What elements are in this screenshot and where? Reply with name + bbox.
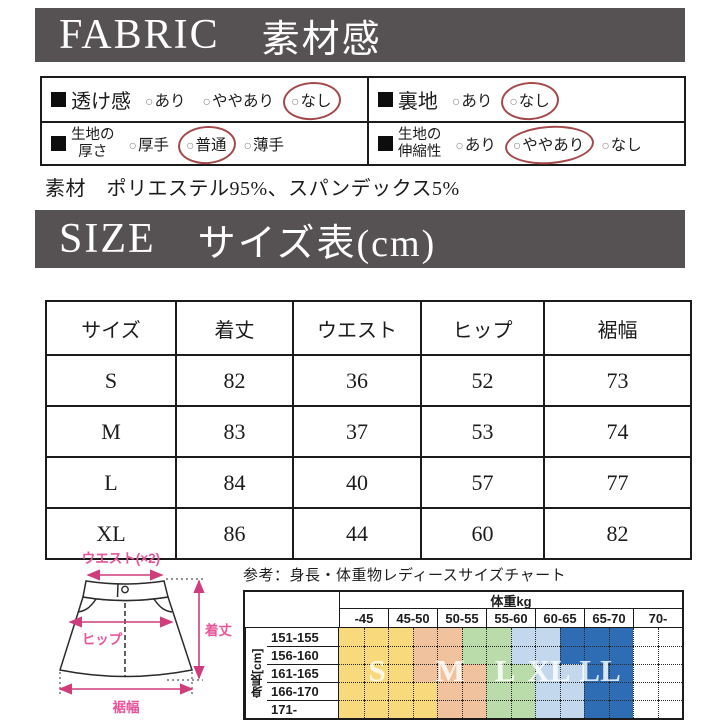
fabric-spec-options: ○あり○なし bbox=[452, 89, 550, 111]
weight-column-header: 50-55 bbox=[437, 609, 486, 628]
fabric-spec-table: 透け感 ○あり○ややあり○なし 裏地 ○あり○なし 生地の厚さ ○厚手○普通○薄… bbox=[40, 76, 686, 166]
heatmap-cell bbox=[584, 700, 609, 718]
size-table-cell: 73 bbox=[544, 355, 691, 406]
heatmap-cell bbox=[437, 664, 462, 682]
fabric-spec-label: 生地の伸縮性 bbox=[398, 127, 442, 159]
radio-circle-icon: ○ bbox=[513, 139, 521, 154]
heatmap-cell bbox=[437, 646, 462, 664]
material-composition-text: 素材 ポリエステル95%、スパンデックス5% bbox=[45, 172, 460, 201]
size-table-cell: 82 bbox=[176, 355, 293, 406]
fabric-option: ○厚手 bbox=[129, 133, 169, 155]
heatmap-cell bbox=[633, 682, 658, 700]
size-title-en: SIZE bbox=[59, 215, 156, 263]
radio-circle-icon: ○ bbox=[186, 139, 194, 154]
heatmap-cell bbox=[584, 664, 609, 682]
skirt-body-outline bbox=[60, 597, 192, 677]
fabric-spec-label: 裏地 bbox=[398, 85, 438, 114]
size-table-row: S82365273 bbox=[46, 355, 691, 406]
skirt-button bbox=[122, 586, 128, 592]
heatmap-cell bbox=[609, 646, 634, 664]
size-table-cell: M bbox=[46, 406, 176, 457]
hem-label: 裾幅 bbox=[113, 699, 140, 715]
heatmap-cell bbox=[364, 628, 389, 646]
black-square-icon bbox=[378, 92, 393, 107]
heatmap-cell bbox=[511, 700, 536, 718]
heatmap-cell bbox=[511, 682, 536, 700]
heatmap-cell bbox=[437, 682, 462, 700]
reference-size-chart: 体重kg-4545-5050-5555-6060-6565-7070-身長[cm… bbox=[243, 590, 684, 720]
fabric-option-selected: ○ややあり bbox=[513, 133, 584, 155]
height-group-header: 身長[cm] bbox=[245, 628, 267, 718]
heatmap-cell bbox=[388, 664, 413, 682]
size-table-cell: 37 bbox=[293, 406, 421, 457]
product-spec-page: FABRIC 素材感 透け感 ○あり○ややあり○なし 裏地 ○あり○なし 生地の… bbox=[0, 0, 720, 720]
fabric-option: ○あり bbox=[145, 89, 185, 111]
size-table-row: L84405777 bbox=[46, 457, 691, 508]
heatmap-cell bbox=[658, 646, 683, 664]
size-table-cell: 82 bbox=[544, 508, 691, 559]
weight-column-header: 65-70 bbox=[584, 609, 633, 628]
heatmap-cell bbox=[609, 628, 634, 646]
heatmap-cell bbox=[658, 664, 683, 682]
heatmap-cell bbox=[633, 664, 658, 682]
heatmap-cell bbox=[584, 628, 609, 646]
heatmap-cell bbox=[364, 664, 389, 682]
radio-circle-icon: ○ bbox=[509, 95, 517, 110]
heatmap-cell bbox=[535, 682, 560, 700]
size-title-ja: サイズ表(cm) bbox=[198, 212, 437, 267]
black-square-icon bbox=[51, 136, 66, 151]
weight-column-header: -45 bbox=[339, 609, 388, 628]
size-table-column-header: 裾幅 bbox=[544, 301, 691, 355]
heatmap-cell bbox=[388, 682, 413, 700]
heatmap-cell bbox=[511, 664, 536, 682]
fabric-option-selected: ○なし bbox=[291, 89, 331, 111]
hip-label: ヒップ bbox=[82, 632, 123, 647]
fabric-spec-cell: 生地の伸縮性 ○あり○ややあり○なし bbox=[367, 121, 684, 164]
size-table-cell: 40 bbox=[293, 457, 421, 508]
heatmap-cell bbox=[462, 646, 487, 664]
size-table-body: S82365273M83375374L84405777XL86446082 bbox=[46, 355, 691, 559]
heatmap-cell bbox=[437, 700, 462, 718]
heatmap-cell bbox=[535, 646, 560, 664]
fabric-spec-cell: 透け感 ○あり○ややあり○なし bbox=[42, 78, 367, 121]
size-table-cell: 83 bbox=[176, 406, 293, 457]
size-table-cell: 52 bbox=[421, 355, 544, 406]
size-table-cell: 53 bbox=[421, 406, 544, 457]
weight-column-header: 70- bbox=[633, 609, 682, 628]
size-table-cell: 74 bbox=[544, 406, 691, 457]
size-table-header: サイズ着丈ウエストヒップ裾幅 bbox=[46, 301, 691, 355]
fabric-title-ja: 素材感 bbox=[262, 8, 382, 63]
height-row-header: 151-155 bbox=[267, 628, 339, 646]
heatmap-cell bbox=[388, 700, 413, 718]
heatmap-cell bbox=[413, 628, 438, 646]
fabric-spec-cell: 裏地 ○あり○なし bbox=[367, 78, 684, 121]
fabric-spec-label: 生地の厚さ bbox=[71, 127, 115, 159]
heatmap-cell bbox=[486, 628, 511, 646]
heatmap-cell bbox=[413, 700, 438, 718]
skirt-measurement-diagram: ウエスト(×2) ヒップ 着丈 裾幅 bbox=[2, 546, 237, 720]
size-table-cell: 57 bbox=[421, 457, 544, 508]
heatmap-cell bbox=[339, 682, 364, 700]
fabric-spec-options: ○厚手○普通○薄手 bbox=[129, 133, 284, 155]
heatmap-cell bbox=[658, 682, 683, 700]
skirt-fly-line bbox=[118, 584, 119, 598]
fabric-spec-label: 透け感 bbox=[71, 85, 131, 114]
heatmap-cell bbox=[462, 628, 487, 646]
size-table-cell: 60 bbox=[421, 508, 544, 559]
heatmap-cell bbox=[584, 682, 609, 700]
heatmap-cell bbox=[339, 664, 364, 682]
fabric-option: ○なし bbox=[601, 133, 641, 155]
fabric-option: ○薄手 bbox=[243, 133, 283, 155]
black-square-icon bbox=[378, 136, 393, 151]
heatmap-cell bbox=[658, 700, 683, 718]
heatmap-cell bbox=[437, 628, 462, 646]
heatmap-cell bbox=[633, 700, 658, 718]
height-row-header: 156-160 bbox=[267, 646, 339, 664]
heatmap-cell bbox=[535, 700, 560, 718]
radio-circle-icon: ○ bbox=[452, 95, 460, 110]
heatmap-cell bbox=[413, 664, 438, 682]
heatmap-cell bbox=[633, 628, 658, 646]
heatmap-cell bbox=[339, 646, 364, 664]
chart-corner-cell bbox=[245, 592, 339, 628]
weight-group-header: 体重kg bbox=[339, 592, 682, 609]
heatmap-cell bbox=[413, 682, 438, 700]
size-table-column-header: 着丈 bbox=[176, 301, 293, 355]
radio-circle-icon: ○ bbox=[129, 139, 137, 154]
heatmap-cell bbox=[535, 664, 560, 682]
size-table-cell: 84 bbox=[176, 457, 293, 508]
heatmap-cell bbox=[388, 628, 413, 646]
heatmap-cell bbox=[584, 646, 609, 664]
weight-column-header: 45-50 bbox=[388, 609, 437, 628]
fabric-title-en: FABRIC bbox=[59, 11, 220, 59]
black-square-icon bbox=[51, 92, 66, 107]
radio-circle-icon: ○ bbox=[202, 95, 210, 110]
size-table-cell: S bbox=[46, 355, 176, 406]
weight-column-header: 60-65 bbox=[535, 609, 584, 628]
size-table-cell: 44 bbox=[293, 508, 421, 559]
heatmap-cell bbox=[535, 628, 560, 646]
waist-label: ウエスト(×2) bbox=[82, 551, 160, 566]
fabric-section-header: FABRIC 素材感 bbox=[35, 8, 685, 62]
fabric-spec-cell: 生地の厚さ ○厚手○普通○薄手 bbox=[42, 121, 367, 164]
heatmap-cell bbox=[486, 664, 511, 682]
heatmap-cell bbox=[609, 664, 634, 682]
heatmap-cell bbox=[486, 682, 511, 700]
radio-circle-icon: ○ bbox=[601, 139, 609, 154]
size-table-column-header: ヒップ bbox=[421, 301, 544, 355]
size-table-cell: L bbox=[46, 457, 176, 508]
heatmap-cell bbox=[511, 646, 536, 664]
size-measurement-table: サイズ着丈ウエストヒップ裾幅 S82365273M83375374L844057… bbox=[45, 300, 692, 560]
heatmap-cell bbox=[364, 646, 389, 664]
fabric-option: ○あり bbox=[452, 89, 492, 111]
heatmap-cell bbox=[462, 682, 487, 700]
size-table-row: M83375374 bbox=[46, 406, 691, 457]
heatmap-cell bbox=[364, 700, 389, 718]
heatmap-cell bbox=[511, 628, 536, 646]
length-label: 着丈 bbox=[204, 622, 232, 638]
heatmap-cell bbox=[413, 646, 438, 664]
heatmap-cell bbox=[560, 682, 585, 700]
radio-circle-icon: ○ bbox=[243, 139, 251, 154]
fabric-option-selected: ○普通 bbox=[186, 133, 226, 155]
heatmap-cell bbox=[364, 682, 389, 700]
heatmap-cell bbox=[560, 664, 585, 682]
heatmap-cell bbox=[462, 700, 487, 718]
heatmap-cell bbox=[560, 646, 585, 664]
weight-column-header: 55-60 bbox=[486, 609, 535, 628]
fabric-spec-options: ○あり○ややあり○なし bbox=[455, 133, 641, 155]
radio-circle-icon: ○ bbox=[455, 139, 463, 154]
reference-chart-title: 参考：身長・体重物レディースサイズチャート bbox=[243, 564, 566, 585]
heatmap-cell bbox=[609, 682, 634, 700]
fabric-option: ○あり bbox=[455, 133, 495, 155]
heatmap-cell bbox=[486, 646, 511, 664]
radio-circle-icon: ○ bbox=[145, 95, 153, 110]
fabric-option-selected: ○なし bbox=[509, 89, 549, 111]
heatmap-cell bbox=[609, 700, 634, 718]
heatmap-cell bbox=[462, 664, 487, 682]
heatmap-cell bbox=[339, 700, 364, 718]
heatmap-cell bbox=[560, 700, 585, 718]
height-row-header: 166-170 bbox=[267, 682, 339, 700]
fabric-spec-options: ○あり○ややあり○なし bbox=[145, 89, 331, 111]
fabric-option: ○ややあり bbox=[202, 89, 273, 111]
height-row-header: 161-165 bbox=[267, 664, 339, 682]
heatmap-cell bbox=[633, 646, 658, 664]
size-table-cell: 77 bbox=[544, 457, 691, 508]
size-table-column-header: ウエスト bbox=[293, 301, 421, 355]
size-table-column-header: サイズ bbox=[46, 301, 176, 355]
height-row-header: 171- bbox=[267, 700, 339, 718]
heatmap-cell bbox=[560, 628, 585, 646]
heatmap-cell bbox=[339, 628, 364, 646]
size-table-cell: 36 bbox=[293, 355, 421, 406]
radio-circle-icon: ○ bbox=[291, 95, 299, 110]
heatmap-cell bbox=[658, 628, 683, 646]
heatmap-cell bbox=[486, 700, 511, 718]
heatmap-cell bbox=[388, 646, 413, 664]
size-section-header: SIZE サイズ表(cm) bbox=[35, 210, 685, 268]
